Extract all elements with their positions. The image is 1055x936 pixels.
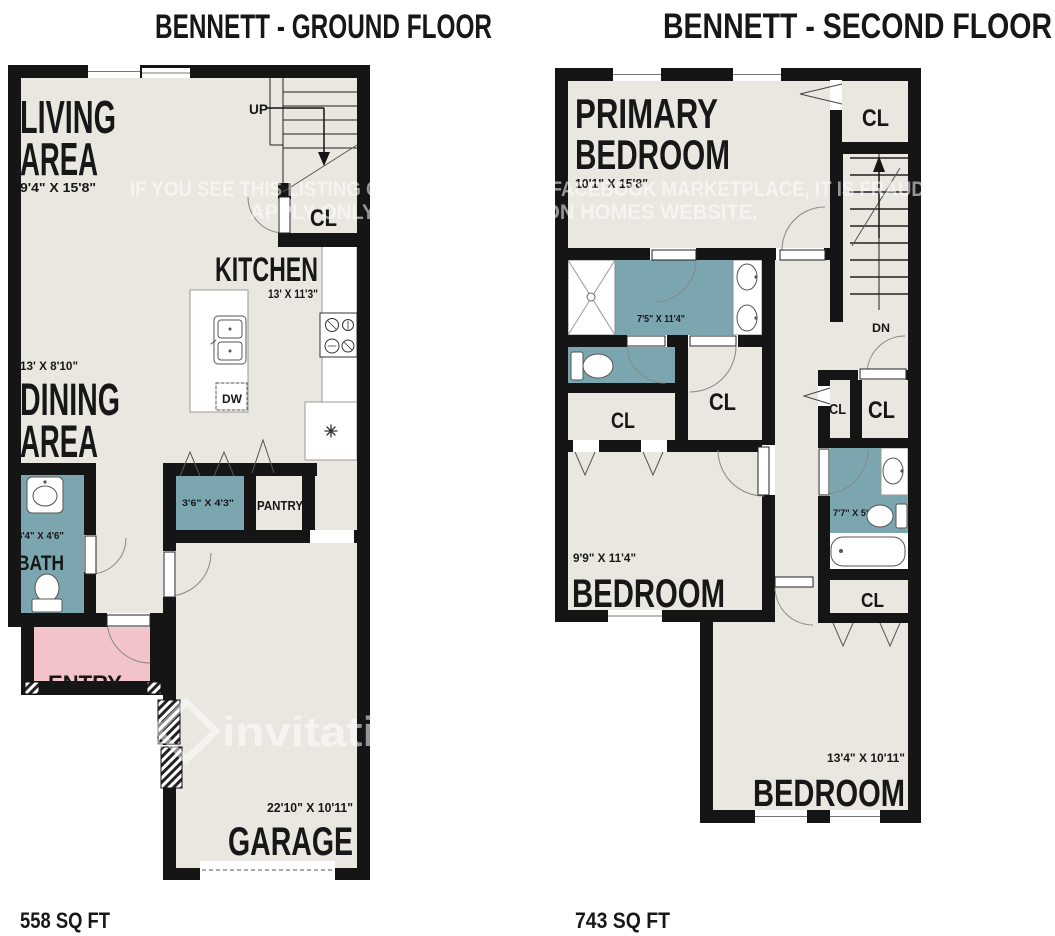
bedroom3-door-leaf [775,577,813,587]
cl-label-small: CL [829,401,846,418]
bath-label: BATH [17,552,64,575]
living-label-2: AREA [20,133,98,185]
hall-closet-door-leaf [690,336,736,346]
second-floor-plan: BENNETT - SECOND FLOOR 743 SQ FT PRIMARY… [555,7,1052,933]
up-label: UP [249,101,268,117]
cl-label-tub: CL [861,590,884,612]
cl-label-left: CL [611,408,635,433]
toilet-room-door-leaf [627,336,665,346]
toilet-icon [571,352,613,380]
primary-label-2: BEDROOM [575,131,730,178]
shower-icon [568,260,615,335]
front-door-leaf [107,615,150,626]
bath-sink-icon [27,477,63,513]
stair-door-leaf [860,369,906,379]
kitchen-label: KITCHEN [215,251,318,289]
second-floor-title: BENNETT - SECOND FLOOR [663,7,1052,46]
watermark-line2: APPLY ONLY ON THE INVITATION HOMES WEBSI… [250,201,758,224]
bathtub-icon [831,537,905,566]
primary-bath-door-leaf [652,250,696,260]
cl-label-right: CL [868,397,895,424]
cl-label-mid: CL [709,389,736,416]
stove-icon [320,313,357,357]
dw-label: DW [222,392,243,406]
ground-floor-plan: BENNETT - GROUND FLOOR 558 SQ FT LIVING … [8,8,492,933]
dn-label: DN [872,321,890,335]
floorplan-image: { "colors": { "wall": "#151515", "floor"… [0,0,1055,936]
bedroom3-dims: 13'4" X 10'11" [827,753,905,765]
primary-label-1: PRIMARY [575,90,718,137]
cl-label-top: CL [862,105,889,132]
vanity-icon [733,260,762,335]
ground-floor-area: 558 SQ FT [20,908,110,933]
dining-label-2: AREA [20,416,98,467]
watermark-brand: invitation [222,708,434,755]
utility-box [305,402,357,460]
bath-dims: 8'4" X 4'6" [17,531,64,542]
primary-bath-dims: 7'5" X 11'4" [637,314,685,325]
closet-dims: 3'6" X 4'3" [182,498,234,509]
toilet-icon [867,504,907,528]
bedroom3-label: BEDROOM [753,773,905,815]
kitchen-sink-icon [211,316,246,364]
entry-label: ENTRY [48,671,122,696]
pantry-label: PANTRY [257,498,303,513]
primary-bedroom-door-leaf [780,250,825,260]
bedroom2-door-leaf [758,447,769,495]
dining-dims: 13' X 8'10" [20,359,78,373]
bedroom2-label: BEDROOM [572,572,725,616]
bath2-sink-icon [881,448,908,495]
bath2-door-leaf [819,449,829,495]
watermark-line1: IF YOU SEE THIS LISTING ON CRAIGSLIST OR… [130,178,930,201]
bath2-dims: 7'7" X 5' [833,508,868,518]
bath-door-leaf [85,536,96,574]
garage-label: GARAGE [228,820,353,864]
second-floor-area: 743 SQ FT [575,908,670,933]
bedroom2-dims: 9'9" X 11'4" [573,553,636,565]
floorplan-svg: BENNETT - GROUND FLOOR 558 SQ FT LIVING … [0,0,1055,936]
garage-dims: 22'10" X 10'11" [267,801,353,815]
garage-entry-door-leaf [164,552,175,597]
ground-floor-title: BENNETT - GROUND FLOOR [155,8,492,46]
living-dims: 9'4" X 15'8" [20,180,96,195]
kitchen-dims: 13' X 11'3" [268,287,318,301]
